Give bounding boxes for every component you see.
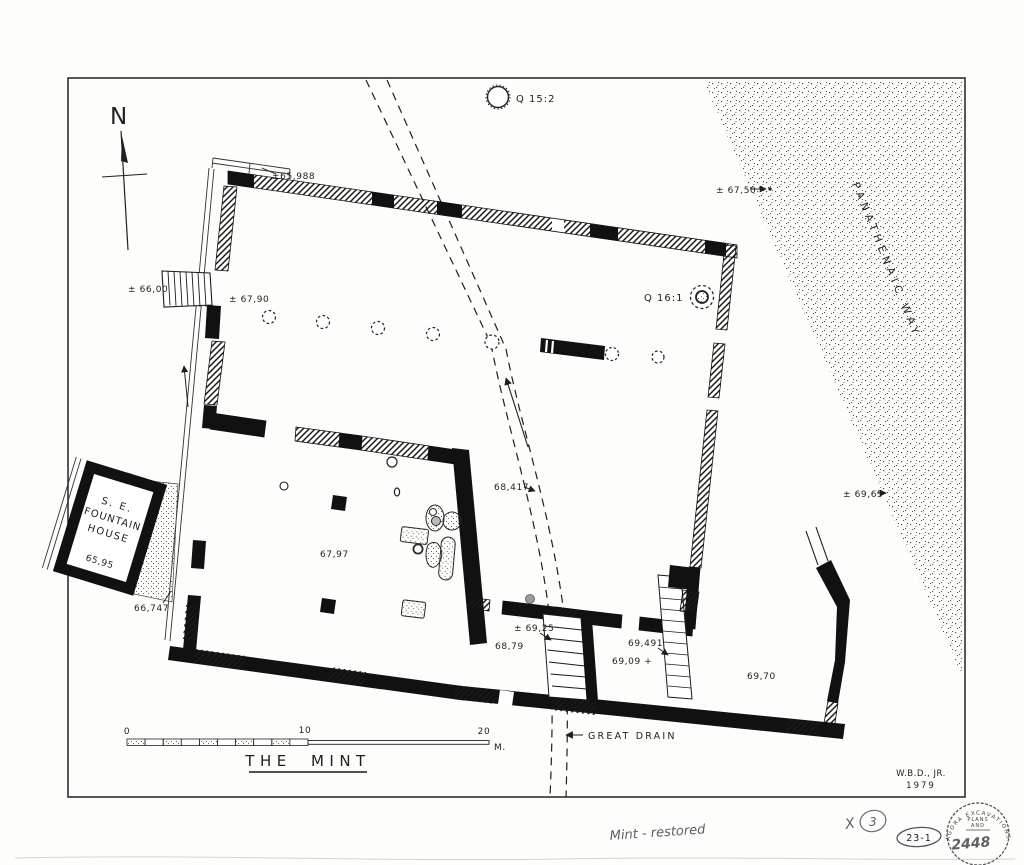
se-fountain-house: S. E. FOUNTAIN HOUSE 65,95 [42, 457, 178, 602]
furnace-pit-cluster [400, 505, 461, 618]
well-q15-label: Q 15:2 [516, 94, 556, 105]
elev-road-lower: ± 69,65 [843, 490, 883, 500]
east-staircase [658, 565, 699, 699]
scale-unit: M. [494, 743, 506, 753]
scale-10: 10 [299, 726, 312, 736]
credit-initials: W.B.D., JR. [896, 769, 946, 779]
scanned-plan-sheet: PANATHENAIC WAY N [0, 0, 1024, 865]
circled-number: 3 [869, 815, 877, 829]
north-arrowhead [121, 136, 128, 163]
pillar-base-2 [320, 598, 336, 614]
long-base-block [540, 338, 619, 361]
south-wall [168, 646, 845, 739]
southeast-wall [806, 527, 850, 736]
elev-west-stairs: ± 66,00 [128, 285, 168, 295]
west-staircase [162, 271, 212, 307]
vertical-internal-wall [452, 448, 487, 645]
mid-partition-wall [210, 413, 463, 465]
scan-edge-artifact [15, 857, 1015, 860]
north-arrow: N [102, 104, 147, 250]
west-corridor-arrow [184, 366, 188, 407]
sw-room-features [280, 457, 535, 618]
stamp-number: 2448 [951, 834, 991, 853]
elev-sw-room: 67,97 [320, 550, 349, 560]
elev-drain-mid: 68,417 [494, 483, 529, 493]
elev-nw-corner: ±65,988 [272, 172, 315, 182]
great-drain-label: GREAT DRAIN [588, 731, 677, 742]
pillar-base-1 [331, 495, 347, 511]
elev-south-room-m: 69,09 + [612, 657, 652, 667]
well-q16-label: Q 16:1 [644, 293, 684, 304]
credit-year: 1979 [906, 781, 936, 791]
stamp-line2: AND [971, 823, 985, 829]
archive-stamp: AGORA EXCAVATIONS PLANS AND 2448 [946, 803, 1012, 865]
credit-block: W.B.D., JR. 1979 [896, 769, 946, 791]
tiny-oval-feature [394, 488, 399, 496]
x-mark: X [843, 815, 857, 833]
file-number: 23-1 [906, 833, 932, 844]
elev-stair-east: 69,491 [628, 639, 663, 649]
great-drain-label-group: GREAT DRAIN [566, 731, 677, 742]
elev-north-room: ± 67,90 [229, 295, 269, 305]
elev-fountain-corner: 66,747 [134, 604, 169, 614]
north-wall [228, 171, 737, 258]
north-letter: N [110, 104, 127, 130]
plan-title: THE MINT [244, 752, 370, 770]
small-circle-feature-2 [280, 482, 288, 490]
elev-south-room-w: 68,79 [495, 642, 524, 652]
scale-bar: 0 10 20 M. [124, 726, 506, 753]
drain-junction-pit [485, 335, 499, 349]
well-q15-2: Q 15:2 [486, 85, 556, 109]
small-circle-feature [387, 457, 397, 467]
title-block: THE MINT [244, 752, 370, 772]
plan-drawing: PANATHENAIC WAY N [0, 0, 1024, 865]
scale-20: 20 [478, 727, 491, 737]
well-q16-1: Q 16:1 [644, 286, 714, 309]
elev-stair-room: ± 69,25 [514, 624, 554, 634]
handwritten-annotations: Mint - restored X 3 23-1 [609, 808, 941, 848]
small-stone [526, 595, 535, 604]
handwritten-note: Mint - restored [609, 822, 706, 844]
scale-0: 0 [124, 727, 130, 737]
elev-south-room-e: 69,70 [747, 672, 776, 682]
west-wall [165, 168, 237, 651]
drain-flow-arrow [506, 378, 528, 447]
elev-road-upper: ± 67,50 [716, 186, 756, 196]
small-pit [652, 351, 664, 363]
